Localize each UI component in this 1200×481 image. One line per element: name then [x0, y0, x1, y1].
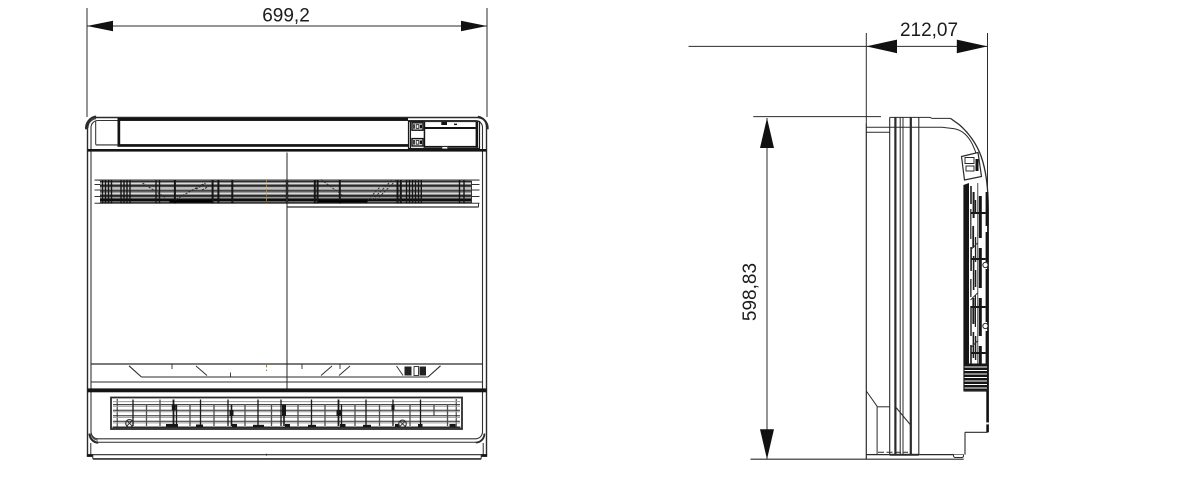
svg-text:598,83: 598,83 [740, 263, 761, 321]
svg-text:699,2: 699,2 [262, 6, 310, 27]
svg-text:212,07: 212,07 [900, 20, 958, 41]
